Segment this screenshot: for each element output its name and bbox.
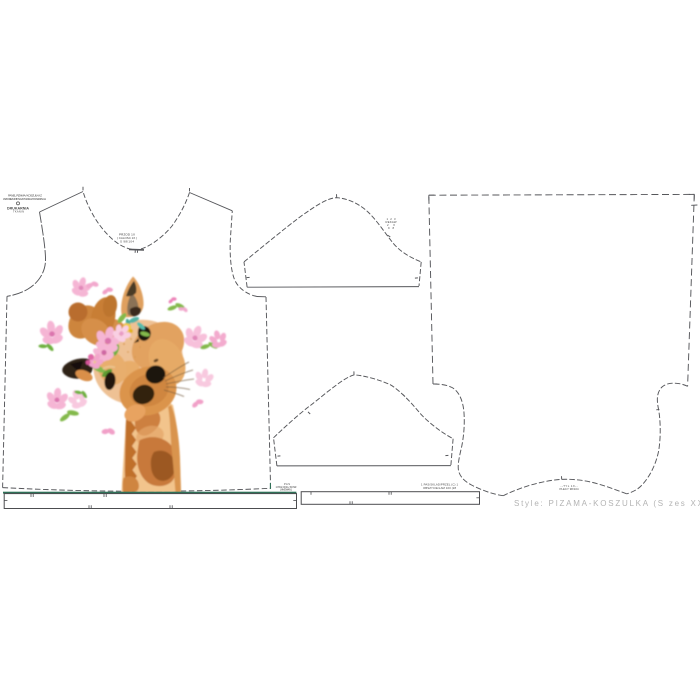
svg-text:OBSZYCIE/LAM 100 (28: OBSZYCIE/LAM 100 (28 [423, 486, 456, 490]
svg-text:S 98/104: S 98/104 [120, 239, 134, 243]
svg-text:LAMOWKA 1: LAMOWKA 1 [280, 488, 293, 492]
svg-text:Style: PIZAMA-KOSZULKA (S zes: Style: PIZAMA-KOSZULKA (S zes XXL [514, 499, 700, 508]
svg-text:PLECY 98/104: PLECY 98/104 [560, 487, 579, 491]
svg-text:TKANIN: TKANIN [13, 209, 24, 213]
svg-text:WZOREM PIKNA ZYRAFA W KWIATACH: WZOREM PIKNA ZYRAFA W KWIATACH [3, 197, 46, 201]
